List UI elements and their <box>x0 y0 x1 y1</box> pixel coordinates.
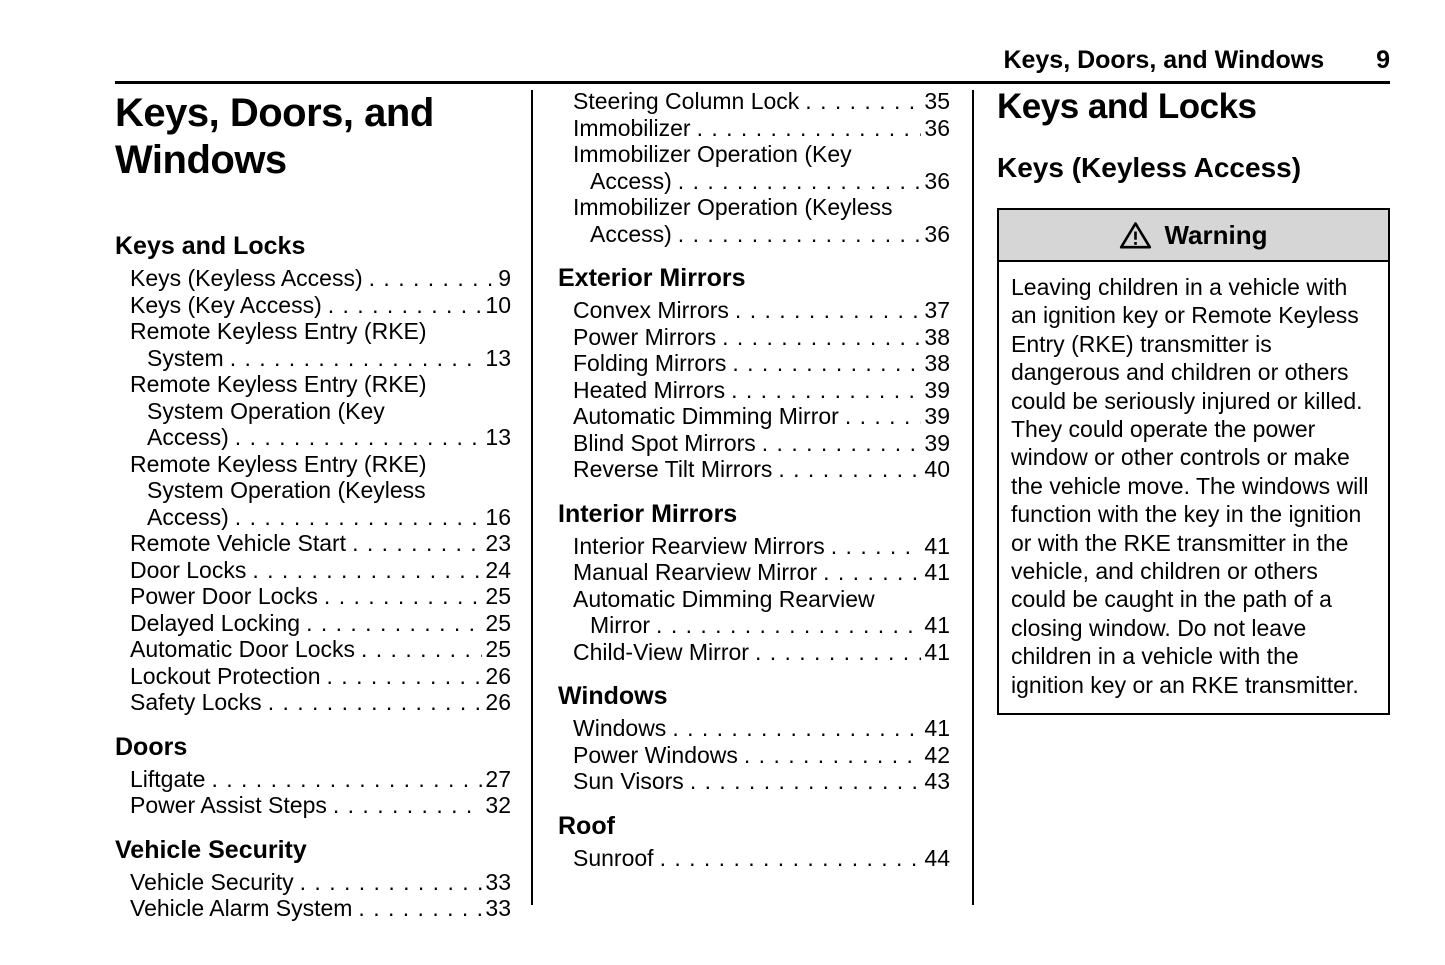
toc-entry-label: Access) <box>147 504 229 531</box>
toc-entry: Interior Rearview Mirrors41 <box>558 533 950 560</box>
toc-page-number: 37 <box>924 297 950 324</box>
column-divider <box>531 90 533 905</box>
toc-page-number: 25 <box>485 636 511 663</box>
toc-leader-dots <box>732 350 921 377</box>
toc-leader-dots <box>327 663 483 690</box>
warning-box: Warning Leaving children in a vehicle wi… <box>997 208 1390 715</box>
toc-entry-label: Immobilizer <box>573 115 691 142</box>
toc-leader-dots <box>805 88 921 115</box>
toc-leader-dots <box>333 792 483 819</box>
toc-entry-line: Heated Mirrors39 <box>573 377 950 404</box>
toc-entry: Child-View Mirror41 <box>558 639 950 666</box>
toc-entry-line: System Operation (Keyless <box>130 477 511 504</box>
toc-entry-line: Convex Mirrors37 <box>573 297 950 324</box>
toc-entry-line: System13 <box>130 345 511 372</box>
toc-entry-line: Windows41 <box>573 715 950 742</box>
toc-entry-line: Liftgate27 <box>130 766 511 793</box>
content-section-heading: Keys and Locks <box>997 88 1390 126</box>
toc-entry-line: Access)13 <box>130 424 511 451</box>
warning-body-text: Leaving children in a vehicle with an ig… <box>999 262 1388 713</box>
toc-entry-line: Sunroof44 <box>573 845 950 872</box>
toc-entry-line: Sun Visors43 <box>573 768 950 795</box>
toc-section-heading: Interior Mirrors <box>558 500 950 529</box>
toc-entry-label: Power Mirrors <box>573 324 716 351</box>
toc-entry-label: Keys (Keyless Access) <box>130 265 363 292</box>
toc-entry-label: Door Locks <box>130 557 246 584</box>
toc-page-number: 9 <box>498 265 511 292</box>
content-subsection-heading: Keys (Keyless Access) <box>997 152 1390 183</box>
toc-leader-dots <box>358 895 482 922</box>
toc-entry: Keys (Key Access)10 <box>115 292 511 319</box>
toc-page-number: 13 <box>485 345 511 372</box>
toc-leader-dots <box>731 377 921 404</box>
toc-page-number: 13 <box>485 424 511 451</box>
toc-entry: Sunroof44 <box>558 845 950 872</box>
toc-leader-dots <box>678 221 922 248</box>
toc-entry-line: Delayed Locking25 <box>130 610 511 637</box>
toc-entry: Vehicle Alarm System33 <box>115 895 511 922</box>
toc-entry: Liftgate27 <box>115 766 511 793</box>
toc-entry-line: Automatic Dimming Rearview <box>573 586 950 613</box>
toc-page-number: 38 <box>924 350 950 377</box>
toc-entry-label: Manual Rearview Mirror <box>573 559 817 586</box>
toc-page-number: 36 <box>924 168 950 195</box>
toc-entry-label: Access) <box>147 424 229 451</box>
toc-entry-label: Vehicle Security <box>130 869 294 896</box>
toc-entry-line: Immobilizer Operation (Keyless <box>573 194 950 221</box>
toc-entry-line: Remote Keyless Entry (RKE) <box>130 371 511 398</box>
toc-column-1: Keys, Doors, and Windows Keys and LocksK… <box>115 90 511 922</box>
toc-entry-line: Immobilizer Operation (Key <box>573 141 950 168</box>
toc-entry: Remote Keyless Entry (RKE)System Operati… <box>115 371 511 451</box>
toc-entry-line: Reverse Tilt Mirrors40 <box>573 456 950 483</box>
toc-page-number: 41 <box>924 612 950 639</box>
toc-entry: Keys (Keyless Access)9 <box>115 265 511 292</box>
toc-entry-line: Power Mirrors38 <box>573 324 950 351</box>
toc-page-number: 41 <box>924 715 950 742</box>
toc-page-number: 39 <box>924 377 950 404</box>
toc-entry: Sun Visors43 <box>558 768 950 795</box>
toc-entry-label: Blind Spot Mirrors <box>573 430 756 457</box>
content-column: Keys and Locks Keys (Keyless Access) War… <box>997 88 1390 715</box>
toc-entry-label: Delayed Locking <box>130 610 300 637</box>
toc-entry: Heated Mirrors39 <box>558 377 950 404</box>
toc-entry: Power Mirrors38 <box>558 324 950 351</box>
toc-leader-dots <box>328 292 483 319</box>
toc-page-number: 39 <box>924 403 950 430</box>
toc-entry-label: Reverse Tilt Mirrors <box>573 456 772 483</box>
running-header: Keys, Doors, and Windows 9 <box>1003 48 1390 73</box>
toc-page-number: 24 <box>485 557 511 584</box>
toc-entry-label: Power Windows <box>573 742 738 769</box>
toc-entry: Immobilizer36 <box>558 115 950 142</box>
toc-entry: Immobilizer Operation (KeylessAccess)36 <box>558 194 950 247</box>
toc-leader-dots <box>235 424 483 451</box>
toc-page-number: 40 <box>924 456 950 483</box>
toc-section-heading: Vehicle Security <box>115 836 511 865</box>
toc-page-number: 36 <box>924 115 950 142</box>
toc-leader-dots <box>300 869 483 896</box>
toc-entry: Power Windows42 <box>558 742 950 769</box>
chapter-title: Keys, Doors, and Windows <box>115 90 511 184</box>
toc-entry: Reverse Tilt Mirrors40 <box>558 456 950 483</box>
toc-leader-dots <box>722 324 921 351</box>
toc-entry: Delayed Locking25 <box>115 610 511 637</box>
toc-entry-line: Folding Mirrors38 <box>573 350 950 377</box>
toc-leader-dots <box>735 297 921 324</box>
toc-page-number: 33 <box>485 869 511 896</box>
toc-entry-label: Automatic Dimming Mirror <box>573 403 839 430</box>
toc-sections-2: Steering Column Lock35Immobilizer36Immob… <box>558 88 950 871</box>
toc-leader-dots <box>230 345 483 372</box>
toc-entry: Remote Keyless Entry (RKE)System Operati… <box>115 451 511 531</box>
toc-entry-line: Remote Vehicle Start23 <box>130 530 511 557</box>
toc-entry-line: Remote Keyless Entry (RKE) <box>130 451 511 478</box>
toc-leader-dots <box>755 639 921 666</box>
toc-entry-line: Remote Keyless Entry (RKE) <box>130 318 511 345</box>
toc-entry: Manual Rearview Mirror41 <box>558 559 950 586</box>
toc-entry-label: Heated Mirrors <box>573 377 725 404</box>
toc-entry-label: Remote Vehicle Start <box>130 530 346 557</box>
toc-entry: Automatic Dimming RearviewMirror41 <box>558 586 950 639</box>
toc-entry: Blind Spot Mirrors39 <box>558 430 950 457</box>
toc-entry: Windows41 <box>558 715 950 742</box>
toc-section-heading: Keys and Locks <box>115 232 511 261</box>
toc-leader-dots <box>324 583 482 610</box>
toc-entry: Remote Vehicle Start23 <box>115 530 511 557</box>
toc-page-number: 33 <box>485 895 511 922</box>
toc-entry-label: Folding Mirrors <box>573 350 726 377</box>
toc-page-number: 38 <box>924 324 950 351</box>
toc-entry: Power Door Locks25 <box>115 583 511 610</box>
toc-page-number: 43 <box>924 768 950 795</box>
toc-entry: Power Assist Steps32 <box>115 792 511 819</box>
toc-entry: Vehicle Security33 <box>115 869 511 896</box>
toc-page-number: 32 <box>485 792 511 819</box>
toc-entry-line: Door Locks24 <box>130 557 511 584</box>
column-divider <box>972 90 974 905</box>
toc-page-number: 42 <box>924 742 950 769</box>
toc-entry: Door Locks24 <box>115 557 511 584</box>
toc-entry-label: Automatic Door Locks <box>130 636 355 663</box>
toc-page-number: 10 <box>485 292 511 319</box>
toc-entry-label: Safety Locks <box>130 689 262 716</box>
toc-leader-dots <box>361 636 482 663</box>
header-rule <box>115 81 1390 84</box>
toc-entry-label: Power Door Locks <box>130 583 318 610</box>
toc-page-number: 26 <box>485 663 511 690</box>
toc-entry-line: Interior Rearview Mirrors41 <box>573 533 950 560</box>
manual-page: Keys, Doors, and Windows 9 Keys, Doors, … <box>0 0 1445 965</box>
toc-leader-dots <box>352 530 482 557</box>
toc-entry-line: Mirror41 <box>573 612 950 639</box>
toc-entry-label: Lockout Protection <box>130 663 321 690</box>
toc-leader-dots <box>306 610 482 637</box>
toc-entry-label: Mirror <box>590 612 650 639</box>
toc-leader-dots <box>823 559 921 586</box>
toc-entry: Automatic Dimming Mirror39 <box>558 403 950 430</box>
toc-leader-dots <box>656 612 921 639</box>
toc-entry-label: Power Assist Steps <box>130 792 327 819</box>
toc-leader-dots <box>690 768 922 795</box>
toc-entry-line: Power Door Locks25 <box>130 583 511 610</box>
toc-entry-label: Access) <box>590 221 672 248</box>
toc-entry: Steering Column Lock35 <box>558 88 950 115</box>
toc-leader-dots <box>672 715 921 742</box>
toc-entry-line: Child-View Mirror41 <box>573 639 950 666</box>
toc-page-number: 26 <box>485 689 511 716</box>
toc-page-number: 16 <box>485 504 511 531</box>
toc-entry: Immobilizer Operation (KeyAccess)36 <box>558 141 950 194</box>
toc-entry-line: Access)16 <box>130 504 511 531</box>
toc-entry-label: Sun Visors <box>573 768 684 795</box>
toc-leader-dots <box>678 168 922 195</box>
toc-entry: Automatic Door Locks25 <box>115 636 511 663</box>
toc-page-number: 36 <box>924 221 950 248</box>
warning-label: Warning <box>1164 220 1267 251</box>
toc-entry-label: Steering Column Lock <box>573 88 799 115</box>
toc-entry: Convex Mirrors37 <box>558 297 950 324</box>
toc-page-number: 41 <box>924 639 950 666</box>
warning-header: Warning <box>999 210 1388 262</box>
toc-entry-label: Convex Mirrors <box>573 297 729 324</box>
toc-entry-line: Vehicle Alarm System33 <box>130 895 511 922</box>
toc-entry-line: Safety Locks26 <box>130 689 511 716</box>
toc-entry-line: Keys (Key Access)10 <box>130 292 511 319</box>
toc-page-number: 25 <box>485 610 511 637</box>
toc-leader-dots <box>778 456 921 483</box>
toc-section-heading: Roof <box>558 812 950 841</box>
toc-leader-dots <box>268 689 483 716</box>
toc-sections-1: Keys and LocksKeys (Keyless Access)9Keys… <box>115 232 511 922</box>
toc-entry-line: Lockout Protection26 <box>130 663 511 690</box>
toc-page-number: 25 <box>485 583 511 610</box>
toc-entry-label: Keys (Key Access) <box>130 292 322 319</box>
toc-entry-label: Sunroof <box>573 845 654 872</box>
toc-entry-line: Immobilizer36 <box>573 115 950 142</box>
toc-entry: Lockout Protection26 <box>115 663 511 690</box>
toc-section-heading: Doors <box>115 733 511 762</box>
toc-entry-line: Keys (Keyless Access)9 <box>130 265 511 292</box>
toc-page-number: 23 <box>485 530 511 557</box>
toc-page-number: 35 <box>924 88 950 115</box>
toc-page-number: 44 <box>924 845 950 872</box>
running-header-page-number: 9 <box>1376 48 1390 73</box>
toc-entry-line: Access)36 <box>573 168 950 195</box>
toc-page-number: 41 <box>924 533 950 560</box>
toc-entry-label: Windows <box>573 715 666 742</box>
warning-triangle-icon <box>1119 221 1152 250</box>
toc-entry-line: Power Assist Steps32 <box>130 792 511 819</box>
toc-column-2: Steering Column Lock35Immobilizer36Immob… <box>558 88 950 871</box>
toc-leader-dots <box>369 265 496 292</box>
toc-entry-line: Blind Spot Mirrors39 <box>573 430 950 457</box>
toc-entry-line: Steering Column Lock35 <box>573 88 950 115</box>
toc-entry-line: Manual Rearview Mirror41 <box>573 559 950 586</box>
toc-leader-dots <box>235 504 483 531</box>
toc-leader-dots <box>762 430 922 457</box>
toc-entry: Safety Locks26 <box>115 689 511 716</box>
toc-leader-dots <box>845 403 922 430</box>
running-header-title: Keys, Doors, and Windows <box>1003 48 1324 73</box>
toc-entry-line: Access)36 <box>573 221 950 248</box>
toc-leader-dots <box>211 766 482 793</box>
toc-section-heading: Exterior Mirrors <box>558 264 950 293</box>
toc-entry: Folding Mirrors38 <box>558 350 950 377</box>
toc-leader-dots <box>744 742 922 769</box>
toc-entry-label: System <box>147 345 224 372</box>
toc-page-number: 27 <box>485 766 511 793</box>
toc-entry-line: Automatic Dimming Mirror39 <box>573 403 950 430</box>
toc-entry-label: Interior Rearview Mirrors <box>573 533 825 560</box>
toc-section-heading: Windows <box>558 682 950 711</box>
toc-page-number: 41 <box>924 559 950 586</box>
toc-leader-dots <box>252 557 482 584</box>
toc-page-number: 39 <box>924 430 950 457</box>
toc-entry: Remote Keyless Entry (RKE)System13 <box>115 318 511 371</box>
toc-leader-dots <box>831 533 922 560</box>
toc-entry-label: Child-View Mirror <box>573 639 749 666</box>
toc-entry-line: System Operation (Key <box>130 398 511 425</box>
toc-entry-line: Power Windows42 <box>573 742 950 769</box>
toc-entry-label: Liftgate <box>130 766 205 793</box>
toc-leader-dots <box>697 115 922 142</box>
toc-entry-line: Vehicle Security33 <box>130 869 511 896</box>
toc-entry-label: Vehicle Alarm System <box>130 895 352 922</box>
toc-leader-dots <box>660 845 922 872</box>
toc-entry-label: Access) <box>590 168 672 195</box>
toc-entry-line: Automatic Door Locks25 <box>130 636 511 663</box>
